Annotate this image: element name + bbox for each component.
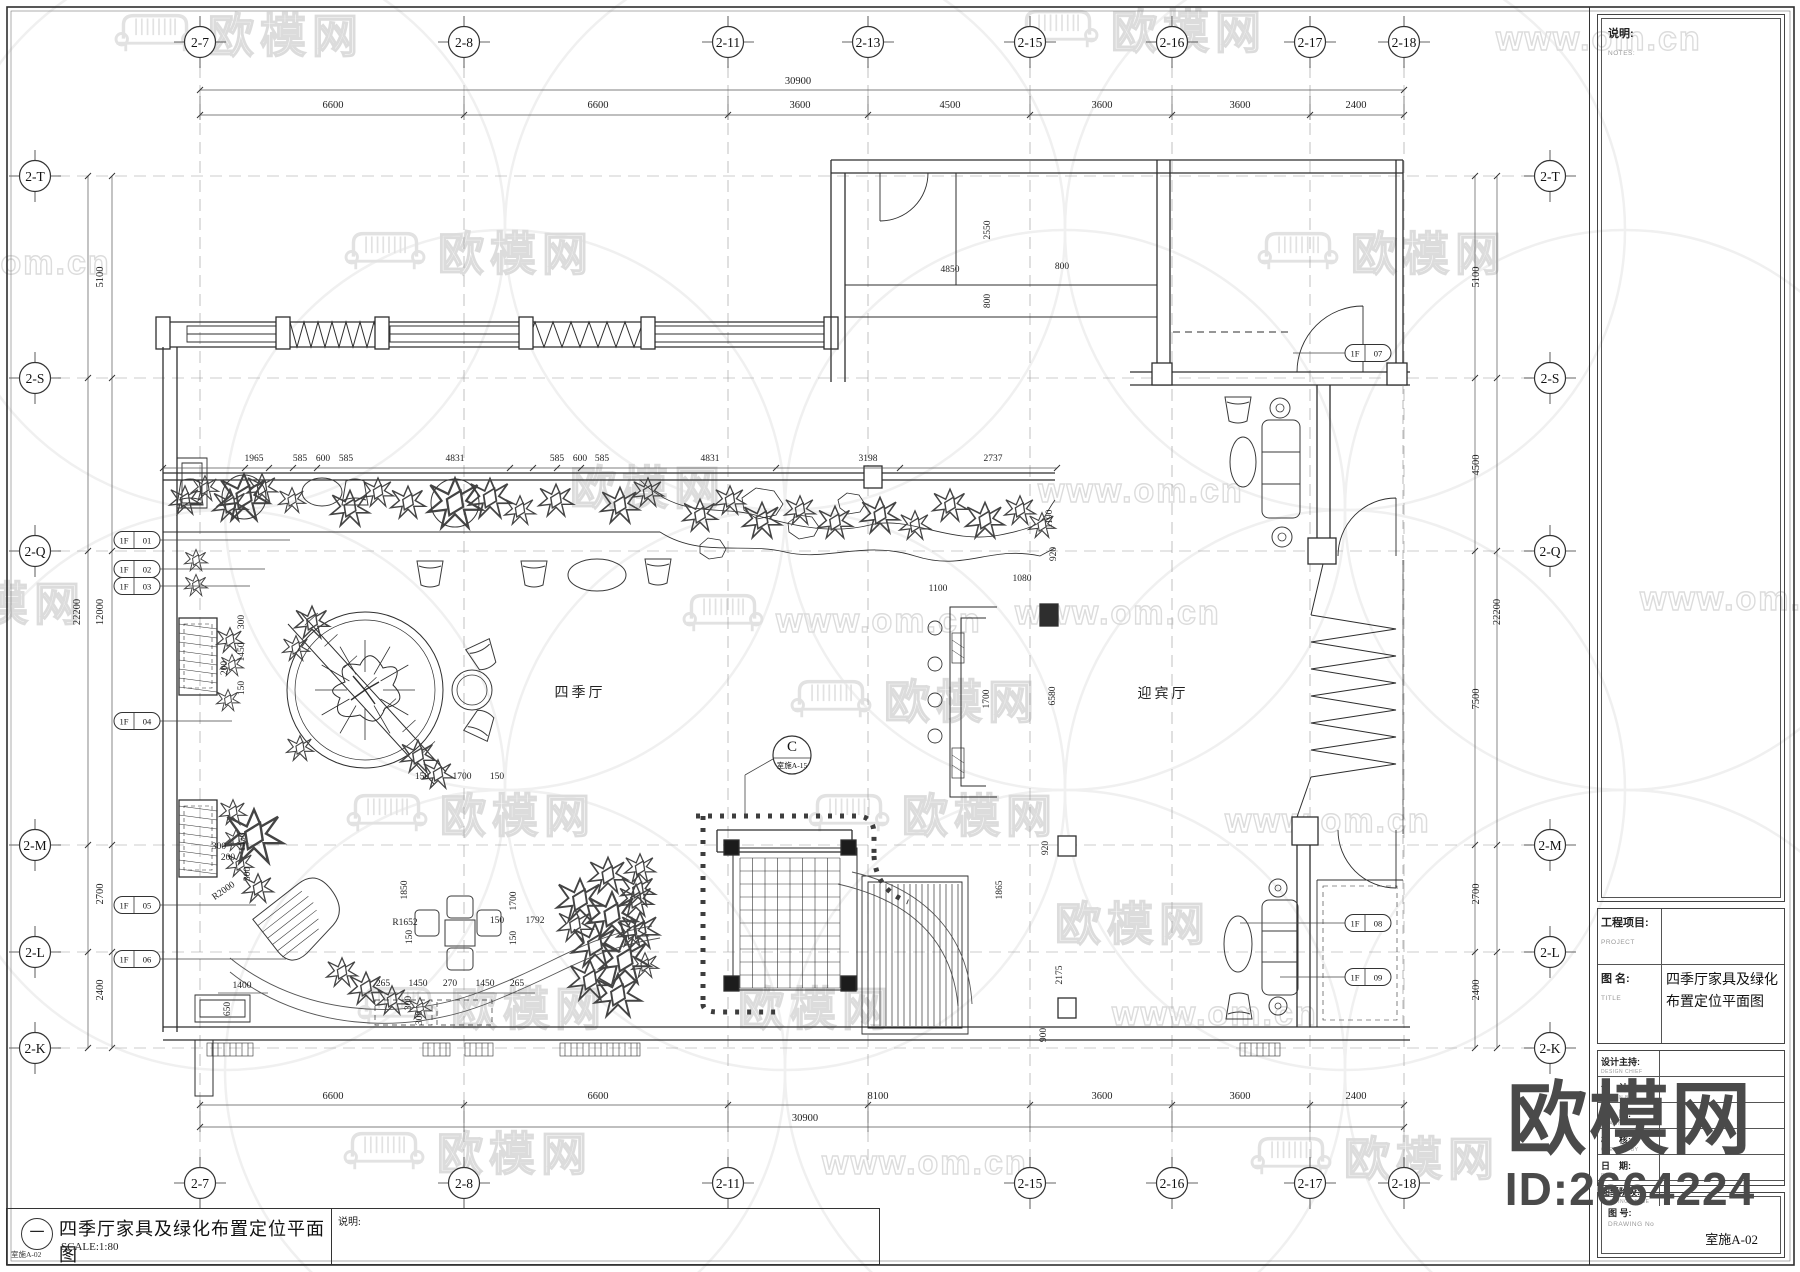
dim-text: 300 — [415, 1011, 425, 1026]
dim-text: 5100 — [95, 267, 106, 288]
watermark-text: 欧模网 — [1055, 898, 1211, 950]
dim-text: 300 — [243, 867, 253, 882]
dim-text: 1080 — [1013, 574, 1032, 584]
svg-text:2-16: 2-16 — [1160, 1176, 1185, 1191]
svg-text:2-18: 2-18 — [1392, 35, 1417, 50]
grid-bubble-2-T: 2-T — [9, 150, 61, 202]
ref-tag-1F08: 1F08 — [1240, 915, 1391, 932]
grid-bubble-2-S: 2-S — [1524, 352, 1576, 404]
watermark-item: 欧模网 — [1259, 228, 1507, 280]
plant-icon — [170, 486, 201, 514]
watermark-item: 欧模网 — [1055, 898, 1211, 950]
figure-index-bubble: 一 — [21, 1218, 53, 1250]
title-block: 说明: NOTES: 工程项目: PROJECT 图 名: TITLE 四季 — [1589, 7, 1794, 1265]
watermark-text: 欧模网 — [208, 10, 364, 62]
sheet-title-cell: 一 室施A-02 四季厅家具及绿化布置定位平面图 SCALE:1:80 — [7, 1209, 332, 1264]
drawing-no-label: 图 号: — [1608, 1208, 1632, 1218]
grid-bubble-2-13: 2-13 — [842, 16, 894, 68]
grid-bubble-2-16: 2-16 — [1146, 1157, 1198, 1209]
floor-plan-canvas: 欧模网欧模网www.om.cn欧模网欧模网www.om.cn欧模网www.om.… — [0, 0, 1800, 1272]
ref-tag-1F04: 1F04 — [114, 713, 232, 730]
dim-text: 200 — [220, 661, 230, 676]
dim-text: 7500 — [1471, 689, 1482, 710]
dim-text: 1450 — [238, 832, 248, 851]
plant-icon — [184, 574, 207, 595]
dim-text: 1400 — [233, 981, 252, 991]
sofa-icon — [346, 234, 424, 270]
notes-label: 说明: — [1608, 28, 1634, 40]
dim-text: 800 — [1055, 262, 1070, 272]
dim-text: 920 — [1041, 841, 1051, 856]
watermark-text: 欧模网 — [440, 790, 596, 842]
svg-text:2-T: 2-T — [25, 169, 45, 184]
dim-text: 2400 — [1346, 100, 1367, 111]
staff-row: 校 核:CHECKED BY — [1598, 1129, 1784, 1155]
dim-text: 600 — [573, 454, 588, 464]
svg-text:2-17: 2-17 — [1298, 35, 1323, 50]
svg-text:01: 01 — [143, 536, 152, 546]
dim-text: 300 — [404, 996, 414, 1011]
dim-text: 6600 — [323, 1091, 344, 1102]
svg-text:2-K: 2-K — [25, 1041, 46, 1056]
figure-code: 室施A-02 — [11, 1249, 41, 1260]
dim-text: 6600 — [588, 100, 609, 111]
plant-icon — [287, 736, 314, 761]
svg-text:1F: 1F — [120, 565, 129, 575]
drawing-name-value: 四季厅家具及绿化 布置定位平面图 — [1662, 965, 1784, 1043]
dim-text: 3600 — [1092, 1091, 1113, 1102]
dim-text: 5100 — [1471, 267, 1482, 288]
sofa-icon — [810, 796, 888, 832]
dim-text: 22200 — [72, 599, 83, 625]
svg-text:室施A-15: 室施A-15 — [777, 760, 808, 770]
figure-scale: SCALE:1:80 — [61, 1241, 118, 1253]
watermark-item: www.om.cn — [684, 596, 982, 640]
drawing-name-label-en: TITLE — [1601, 995, 1621, 1002]
svg-text:02: 02 — [143, 565, 152, 575]
drawing-number-panel: 图 号: DRAWING No 室施A-02 — [1597, 1192, 1785, 1258]
dim-total-bottom: 30900 — [792, 1113, 818, 1124]
sheet-notes-cell: 说明: — [332, 1209, 879, 1264]
dim-text: 900 — [1039, 1028, 1049, 1043]
background-arc — [1065, 0, 1625, 510]
watermark-item: 欧模网 — [792, 676, 1040, 728]
dim-text: 1700 — [982, 689, 992, 708]
drawing-title-line2: 布置定位平面图 — [1666, 991, 1780, 1013]
dim-text: 1450 — [409, 979, 428, 989]
watermark-text: www.om.cn — [1037, 472, 1244, 510]
dim-text: 1450 — [237, 642, 247, 661]
project-label-en: PROJECT — [1601, 939, 1635, 946]
svg-text:2-17: 2-17 — [1298, 1176, 1323, 1191]
watermark-item: 欧模网 — [1019, 6, 1267, 58]
sofa-icon — [1252, 1139, 1330, 1175]
svg-text:2-8: 2-8 — [455, 1176, 473, 1191]
grid-bubble-2-K: 2-K — [9, 1022, 61, 1074]
stool-icon — [1225, 397, 1251, 423]
staff-panel: 设计主持:DESIGN CHIEF设 计:DESIGN BY制 图:DRAWN … — [1597, 1050, 1785, 1186]
dim-text: 2400 — [1471, 980, 1482, 1001]
sheet-title-bar: 一 室施A-02 四季厅家具及绿化布置定位平面图 SCALE:1:80 说明: — [6, 1208, 880, 1265]
dim-text: R2000 — [211, 880, 238, 903]
grid-bubble-2-L: 2-L — [1524, 926, 1576, 978]
stool-icon — [417, 561, 443, 587]
project-row: 工程项目: PROJECT — [1598, 909, 1784, 965]
notes-label-en: NOTES: — [1608, 50, 1635, 57]
plant-icon — [1005, 496, 1036, 524]
dim-total-top: 30900 — [785, 76, 811, 87]
grid-bubble-2-18: 2-18 — [1378, 16, 1430, 68]
stool-icon — [521, 561, 547, 587]
svg-text:2-16: 2-16 — [1160, 35, 1185, 50]
grid-bubble-2-M: 2-M — [1524, 819, 1576, 871]
plant-icon — [469, 479, 511, 518]
dim-text: 12000 — [95, 599, 106, 625]
dim-text: 150 — [490, 772, 505, 782]
plant-icon — [539, 484, 574, 516]
svg-text:1F: 1F — [120, 955, 129, 965]
svg-text:2-8: 2-8 — [455, 35, 473, 50]
staff-row: 日 期:DATE — [1598, 1155, 1784, 1181]
svg-text:06: 06 — [143, 955, 152, 965]
room-label: 四季厅 — [555, 685, 606, 701]
dim-text: 150 — [237, 681, 247, 696]
dim-text: 3600 — [1230, 100, 1251, 111]
svg-text:08: 08 — [1374, 919, 1383, 929]
watermark-item: 欧模网 — [116, 10, 364, 62]
dim-text: 1700 — [453, 772, 472, 782]
dim-text: 3600 — [790, 100, 811, 111]
notes-panel-inner: 说明: NOTES: — [1601, 18, 1781, 898]
svg-text:2-M: 2-M — [1538, 838, 1561, 853]
ref-tag-1F05: 1F05 — [114, 897, 256, 914]
drawing-name-label: 图 名: — [1601, 973, 1630, 985]
svg-text:1F: 1F — [1351, 349, 1360, 359]
sofa-icon — [348, 796, 426, 832]
svg-text:2-11: 2-11 — [716, 1176, 740, 1191]
dim-text: 150 — [415, 772, 430, 782]
dim-text: 150 — [509, 931, 519, 946]
dim-text: 4500 — [1471, 455, 1482, 476]
svg-text:09: 09 — [1374, 973, 1383, 983]
watermark-text: 欧模网 — [884, 676, 1040, 728]
svg-text:2-18: 2-18 — [1392, 1176, 1417, 1191]
dim-text: R1652 — [392, 918, 418, 928]
dim-text: 4850 — [941, 265, 960, 275]
staff-row: 设 计:DESIGN BY — [1598, 1077, 1784, 1103]
svg-text:2-M: 2-M — [23, 838, 46, 853]
oval-table — [568, 559, 626, 591]
dim-text: 150 — [490, 916, 505, 926]
dim-text: 2550 — [983, 220, 993, 239]
plant-icon — [327, 958, 358, 986]
sofa-icon — [116, 16, 194, 52]
stool-icon — [645, 559, 671, 585]
dim-text: 3600 — [1092, 100, 1113, 111]
svg-text:2-L: 2-L — [25, 945, 45, 960]
labels-layer: 四季厅迎宾厅 — [555, 685, 1189, 702]
dim-text: 1700 — [509, 891, 519, 910]
dim-text: 585 — [550, 454, 565, 464]
ref-tag-1F01: 1F01 — [114, 532, 290, 549]
plant-icon — [391, 486, 426, 518]
plant-icon — [933, 489, 968, 521]
svg-text:2-Q: 2-Q — [1540, 544, 1561, 559]
svg-text:2-15: 2-15 — [1018, 35, 1043, 50]
svg-text:1F: 1F — [1351, 919, 1360, 929]
dim-text: 600 — [316, 454, 331, 464]
grid-bubble-2-8: 2-8 — [438, 16, 490, 68]
watermark-item: 欧模网 — [810, 790, 1058, 842]
light-watermark-layer: 欧模网欧模网www.om.cn欧模网欧模网www.om.cn欧模网www.om.… — [0, 0, 1800, 1272]
dim-text: 2737 — [984, 454, 1003, 464]
dim-text: 1850 — [400, 880, 410, 899]
dim-text: 2400 — [1346, 1091, 1367, 1102]
svg-text:07: 07 — [1374, 349, 1383, 359]
dim-text: 6580 — [1048, 686, 1058, 705]
dim-text: 4500 — [940, 100, 961, 111]
dim-text: 1792 — [526, 916, 545, 926]
round-table — [1270, 398, 1290, 418]
svg-text:2-K: 2-K — [1540, 1041, 1561, 1056]
dim-text: 2175 — [1055, 965, 1065, 984]
watermark-text: 欧模网 — [902, 790, 1058, 842]
svg-text:2-Q: 2-Q — [25, 544, 46, 559]
drawing-name-row: 图 名: TITLE 四季厅家具及绿化 布置定位平面图 — [1598, 965, 1784, 1043]
svg-text:1F: 1F — [120, 536, 129, 546]
svg-text:2-S: 2-S — [1541, 371, 1560, 386]
grid-bubble-2-11: 2-11 — [702, 1157, 754, 1209]
svg-text:1F: 1F — [120, 901, 129, 911]
drawing-no-label-en: DRAWING No — [1608, 1221, 1654, 1228]
dim-text: 3198 — [859, 454, 878, 464]
plant-icon — [900, 511, 931, 539]
drawing-sheet: 欧模网欧模网www.om.cn欧模网欧模网www.om.cn欧模网www.om.… — [0, 0, 1800, 1272]
dim-text: 22200 — [1492, 599, 1503, 625]
svg-text:04: 04 — [143, 717, 152, 727]
dim-text: 4831 — [701, 454, 720, 464]
watermark-text: www.om.cn — [821, 1144, 1028, 1182]
svg-text:2-T: 2-T — [1540, 169, 1560, 184]
dim-text: 2700 — [1471, 884, 1482, 905]
svg-text:2-11: 2-11 — [716, 35, 740, 50]
grid-bubble-2-17: 2-17 — [1284, 16, 1336, 68]
svg-text:2-S: 2-S — [26, 371, 45, 386]
round-table — [1272, 527, 1292, 547]
dim-text: 265 — [376, 979, 391, 989]
plant-icon — [818, 506, 853, 538]
dim-text: 1100 — [929, 584, 948, 594]
watermark-item: 欧模网 — [346, 228, 594, 280]
project-value — [1662, 909, 1784, 964]
ref-tag-1F07: 1F07 — [1293, 345, 1391, 362]
dim-text: 2700 — [95, 884, 106, 905]
ref-tag-1F03: 1F03 — [114, 578, 250, 595]
grid-bubble-2-Q: 2-Q — [1524, 525, 1576, 577]
dim-text: 6600 — [588, 1091, 609, 1102]
drawing-number-inner: 图 号: DRAWING No 室施A-02 — [1601, 1196, 1781, 1254]
svg-text:2-7: 2-7 — [191, 35, 209, 50]
svg-text:03: 03 — [143, 582, 152, 592]
plant-icon — [505, 496, 536, 524]
watermark-text: 欧模网 — [1351, 228, 1507, 280]
svg-text:1F: 1F — [120, 582, 129, 592]
svg-text:05: 05 — [143, 901, 152, 911]
grid-bubble-2-S: 2-S — [9, 352, 61, 404]
svg-text:1F: 1F — [1351, 973, 1360, 983]
dim-text: 3600 — [1230, 1091, 1251, 1102]
dim-text: 4831 — [446, 454, 465, 464]
grid-bubble-2-L: 2-L — [9, 926, 61, 978]
svg-text:2-L: 2-L — [1540, 945, 1560, 960]
project-panel: 工程项目: PROJECT 图 名: TITLE 四季厅家具及绿化 布置定位平面… — [1597, 908, 1785, 1044]
dim-text: 265 — [510, 979, 525, 989]
dim-text: 150 — [405, 930, 415, 945]
dim-text: 650 — [223, 1002, 233, 1017]
sofa-icon — [345, 1134, 423, 1170]
svg-text:2-15: 2-15 — [1018, 1176, 1043, 1191]
dim-text: 920 — [1049, 547, 1059, 562]
watermark-text: 欧模网 — [1344, 1133, 1500, 1185]
dim-text: 300 — [237, 615, 247, 630]
sofa-icon — [1259, 234, 1337, 270]
dim-text: 1450 — [476, 979, 495, 989]
grid-bubble-2-M: 2-M — [9, 819, 61, 871]
detail-callout-C: C室施A-15 — [745, 736, 811, 817]
notes-panel: 说明: NOTES: — [1597, 14, 1785, 902]
dim-text: 585 — [339, 454, 354, 464]
staff-row: 设计主持:DESIGN CHIEF — [1598, 1051, 1784, 1077]
stool-circle — [928, 729, 942, 743]
grid-bubble-2-11: 2-11 — [702, 16, 754, 68]
dim-text: 200 — [221, 853, 236, 863]
room-label: 迎宾厅 — [1138, 686, 1189, 702]
dim-text: 6600 — [323, 100, 344, 111]
svg-text:1F: 1F — [120, 717, 129, 727]
dim-text: 800 — [983, 294, 993, 309]
watermark-item: www.om.cn — [1224, 802, 1431, 840]
watermark-text: www.om.cn — [775, 602, 982, 640]
dim-text: 1865 — [995, 880, 1005, 899]
watermark-text: 欧模网 — [438, 228, 594, 280]
plant-icon — [966, 502, 1004, 537]
watermark-text: www.om.cn — [1224, 802, 1431, 840]
grid-bubble-2-15: 2-15 — [1004, 16, 1056, 68]
dim-text: 300 — [212, 842, 227, 852]
grid-bubble-2-K: 2-K — [1524, 1022, 1576, 1074]
staff-row: 制 图:DRAWN BY — [1598, 1103, 1784, 1129]
stool-circle — [928, 657, 942, 671]
drawing-no-value: 室施A-02 — [1705, 1229, 1758, 1248]
project-label: 工程项目: — [1601, 917, 1649, 929]
sofa-icon — [684, 596, 762, 632]
svg-text:2-7: 2-7 — [191, 1176, 209, 1191]
plant-icon — [184, 549, 207, 570]
dim-text: 1190 — [1045, 509, 1055, 528]
dim-text: 585 — [293, 454, 308, 464]
dim-text: 585 — [595, 454, 610, 464]
svg-text:2-13: 2-13 — [856, 35, 881, 50]
watermark-item: www.om.cn — [1037, 472, 1244, 510]
dim-text: 8100 — [868, 1091, 889, 1102]
watermark-item: 欧模网 — [1252, 1133, 1500, 1185]
dim-text: 1965 — [245, 454, 264, 464]
sheet-notes-label: 说明: — [338, 1213, 361, 1228]
watermark-text: 欧模网 — [1111, 6, 1267, 58]
drawing-title-line1: 四季厅家具及绿化 — [1666, 969, 1780, 991]
grid-bubble-2-T: 2-T — [1524, 150, 1576, 202]
dim-text: 270 — [443, 979, 458, 989]
watermark-item: www.om.cn — [821, 1144, 1028, 1182]
tree-plan-icon — [315, 640, 415, 740]
grid-bubble-2-7: 2-7 — [174, 1157, 226, 1209]
svg-text:C: C — [787, 739, 797, 755]
dim-text: 2400 — [95, 980, 106, 1001]
